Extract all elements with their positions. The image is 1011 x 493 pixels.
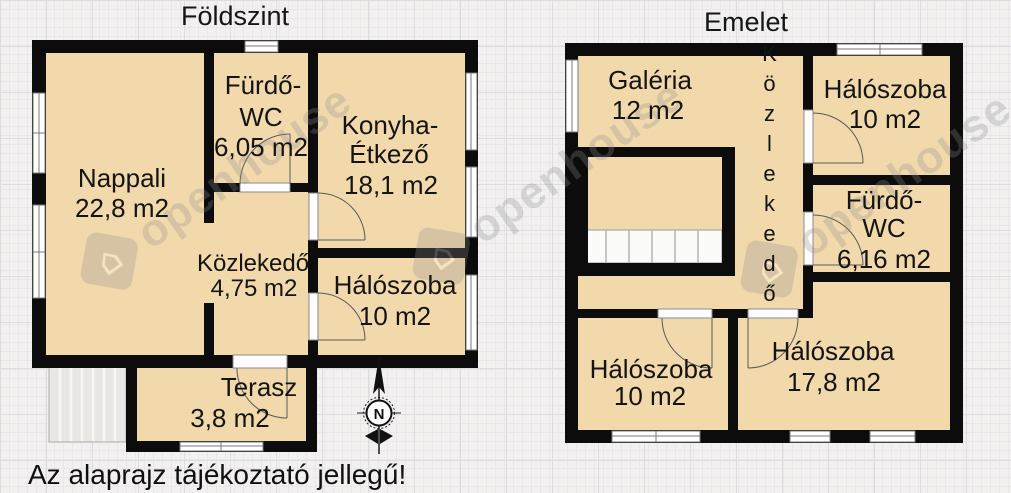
room-label-kozlekedo-emelet: Közlekedő — [756, 41, 782, 311]
room-area-kozlekedo: 4,75 m2 — [211, 277, 298, 301]
room-area-haloszoba-fent: 10 m2 — [849, 106, 921, 132]
room-label-konyha-1: Konyha- — [342, 112, 439, 138]
room-label-furdo-wc-emelet-1: Fürdő- — [846, 187, 923, 213]
room-label-haloszoba: Hálószoba — [334, 272, 457, 298]
room-label-nappali: Nappali — [78, 165, 166, 191]
room-area-furdo-wc-emelet: 6,16 m2 — [837, 246, 931, 272]
floor-title-emelet: Emelet — [704, 7, 788, 38]
room-label-furdo-wc-2: WC — [239, 104, 282, 130]
room-area-konyha: 18,1 m2 — [344, 172, 438, 198]
emelet-stairs — [583, 230, 722, 263]
room-area-haloszoba-bal: 10 m2 — [614, 383, 686, 409]
compass-north-indicator: N — [354, 350, 406, 460]
room-area-furdo-wc: 6,05 m2 — [214, 134, 308, 160]
floor-title-foldszint: Földszint — [181, 1, 289, 32]
room-label-kozlekedo: Közlekedő — [197, 252, 309, 276]
disclaimer-text: Az alaprajz tájékoztató jellegű! — [28, 459, 406, 491]
floorplan-canvas: ⌂ openhouse ⌂ openhouse ⌂ openhouse Föld… — [0, 0, 1011, 493]
room-label-haloszoba-nagy: Hálószoba — [772, 338, 895, 364]
room-label-furdo-wc-1: Fürdő- — [225, 72, 302, 98]
room-area-haloszoba: 10 m2 — [359, 303, 431, 329]
room-area-terasz: 3,8 m2 — [190, 405, 270, 431]
room-area-galeria: 12 m2 — [612, 97, 684, 123]
room-label-galeria: Galéria — [608, 67, 692, 93]
room-area-haloszoba-nagy: 17,8 m2 — [787, 369, 881, 395]
room-area-nappali: 22,8 m2 — [75, 195, 169, 221]
room-label-terasz: Terasz — [221, 374, 298, 400]
room-label-haloszoba-fent: Hálószoba — [824, 76, 947, 102]
compass-north-label: N — [374, 406, 385, 423]
compass-graphic: N — [357, 356, 401, 454]
room-label-furdo-wc-emelet-2: WC — [862, 215, 905, 241]
room-label-haloszoba-bal: Hálószoba — [590, 356, 713, 382]
room-label-konyha-2: Étkező — [349, 141, 429, 167]
terasz-steps — [49, 365, 126, 442]
